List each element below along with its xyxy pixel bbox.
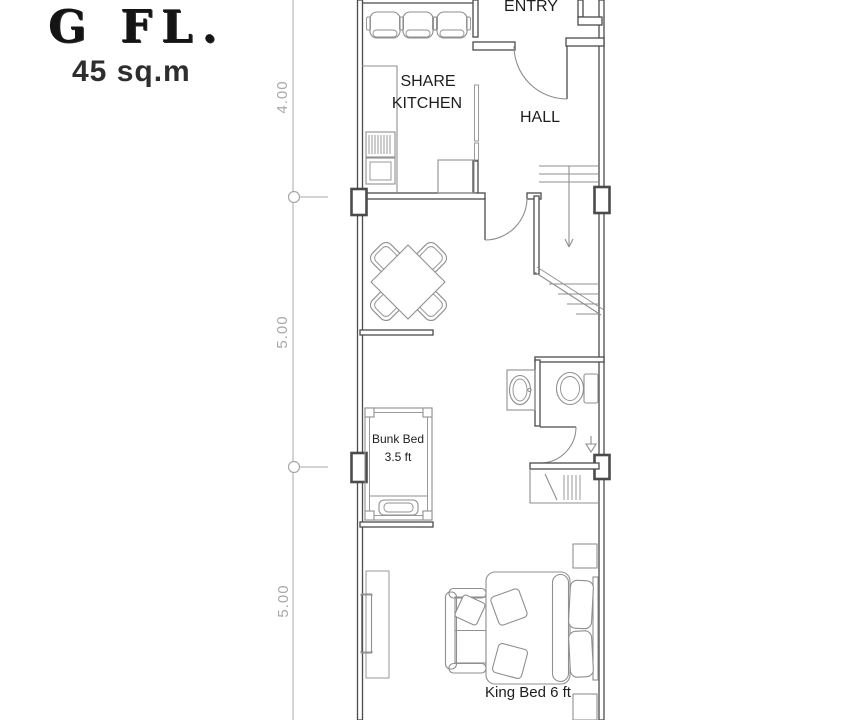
dimension-value-middle: 5.00	[274, 315, 291, 348]
stool-icon	[367, 12, 404, 38]
hall-door	[485, 198, 527, 240]
king-bed-label: King Bed 6 ft	[485, 684, 572, 701]
dining-table-set	[368, 240, 450, 324]
stool-icon	[400, 12, 437, 38]
armchair	[446, 589, 487, 674]
entry-label: ENTRY	[504, 0, 558, 15]
bunk-bed-label-line1: Bunk Bed	[372, 432, 424, 446]
hall-label: HALL	[520, 109, 560, 126]
bar-stools	[367, 12, 471, 38]
bathroom-door	[540, 427, 576, 463]
dimension-value-bottom: 5.00	[275, 584, 292, 617]
bathroom	[507, 357, 604, 503]
fridge-icon	[438, 160, 474, 193]
nightstand-icon	[573, 544, 597, 568]
nightstand-icon	[573, 694, 597, 720]
pillow-icon	[568, 630, 593, 677]
floor-plan-drawing: 4.00 5.00 5.00	[0, 0, 864, 720]
pillow-icon	[568, 580, 593, 629]
toilet-icon	[557, 373, 599, 405]
vanity-sink	[507, 370, 535, 410]
dimension-line	[289, 0, 329, 720]
floor-plan-page: G FL. 45 sq.m 4.00 5.00 5.00	[0, 0, 864, 720]
dimension-value-top: 4.00	[274, 80, 291, 113]
king-bed: King Bed 6 ft	[485, 572, 598, 701]
stool-icon	[434, 12, 471, 38]
pillow-icon	[379, 500, 418, 515]
shower	[530, 469, 598, 503]
throw-pillow-icon	[454, 594, 486, 626]
bunk-bed-label-line2: 3.5 ft	[385, 450, 412, 464]
entry-door	[514, 46, 567, 99]
dish-rack-icon	[369, 135, 390, 154]
shower-head-icon	[586, 436, 596, 452]
tv-console	[360, 571, 389, 678]
share-kitchen-label-line1: SHARE	[400, 73, 455, 90]
share-kitchen-label-line2: KITCHEN	[392, 95, 462, 112]
dining-table-icon	[371, 245, 445, 319]
bunk-bed: Bunk Bed 3.5 ft	[365, 408, 432, 520]
